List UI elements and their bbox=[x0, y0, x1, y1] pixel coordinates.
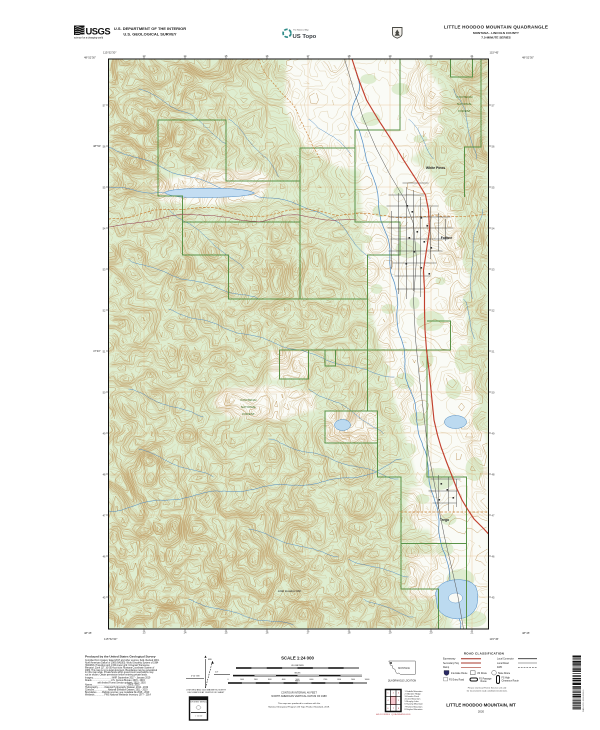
svg-text:2000: 2000 bbox=[254, 679, 258, 681]
svg-text:47′30″: 47′30″ bbox=[93, 349, 101, 353]
svg-text:NATIONAL: NATIONAL bbox=[457, 102, 473, 106]
svg-text:FS High: FS High bbox=[502, 678, 511, 680]
svg-text:4000: 4000 bbox=[282, 679, 286, 681]
svg-text:KOOTENAI: KOOTENAI bbox=[241, 398, 257, 402]
svg-text:GN: GN bbox=[196, 676, 200, 678]
svg-text:6000: 6000 bbox=[310, 679, 314, 681]
svg-text:FS Passage: FS Passage bbox=[479, 679, 492, 681]
svg-text:ADJOINING QUADRANGLES: ADJOINING QUADRANGLES bbox=[376, 713, 411, 716]
svg-text:9000: 9000 bbox=[351, 679, 355, 681]
svg-text:science for a changing world: science for a changing world bbox=[74, 36, 104, 39]
svg-text:6 Swamp Mountain: 6 Swamp Mountain bbox=[405, 703, 424, 706]
svg-text:ROAD CLASSIFICATION: ROAD CLASSIFICATION bbox=[464, 652, 504, 656]
svg-text:for inconsistent road conditio: for inconsistent road conditions/restric… bbox=[467, 689, 507, 692]
svg-text:3000: 3000 bbox=[268, 679, 272, 681]
svg-text:48°52′30″: 48°52′30″ bbox=[522, 56, 534, 60]
svg-text:48°45′: 48°45′ bbox=[84, 631, 92, 635]
svg-text:FOREST: FOREST bbox=[242, 412, 255, 416]
svg-text:2020: 2020 bbox=[478, 710, 485, 714]
svg-text:0°14′: 0°14′ bbox=[191, 676, 196, 678]
svg-text:Trego: Trego bbox=[440, 518, 449, 522]
svg-text:Wetlands................FWS Na: Wetlands................FWS National Wet… bbox=[85, 693, 151, 696]
svg-text:1000: 1000 bbox=[240, 679, 244, 681]
svg-text:115°45′: 115°45′ bbox=[490, 51, 500, 55]
svg-text:Ramp: Ramp bbox=[443, 667, 450, 669]
svg-text:Local Road: Local Road bbox=[497, 663, 509, 665]
svg-text:4WD: 4WD bbox=[497, 667, 502, 669]
svg-text:US Topo: US Topo bbox=[293, 34, 317, 40]
svg-text:115°45′: 115°45′ bbox=[490, 637, 500, 641]
svg-text:MONTANA: MONTANA bbox=[398, 667, 410, 670]
svg-text:Clearance Route: Clearance Route bbox=[502, 679, 520, 682]
svg-text:115°52′30″: 115°52′30″ bbox=[104, 637, 117, 641]
svg-text:FOREST: FOREST bbox=[458, 109, 471, 113]
svg-text:Produced by the United States: Produced by the United States Geological… bbox=[85, 655, 156, 659]
svg-text:Route: Route bbox=[481, 680, 488, 683]
svg-text:White Pines: White Pines bbox=[426, 166, 445, 170]
svg-text:Interstate Route: Interstate Route bbox=[451, 672, 468, 675]
svg-text:This map was produced to confo: This map was produced to conform with th… bbox=[278, 702, 321, 705]
svg-text:LITTLE HOODOO MOUNTAIN QUADRAN: LITTLE HOODOO MOUNTAIN QUADRANGLE bbox=[444, 24, 548, 29]
svg-text:MN: MN bbox=[208, 659, 212, 661]
svg-text:Little Hoodoo Mtn: Little Hoodoo Mtn bbox=[278, 589, 302, 593]
svg-text:State Route: State Route bbox=[498, 672, 511, 675]
svg-text:LITTLE HOODOO MOUNTAIN, MT: LITTLE HOODOO MOUNTAIN, MT bbox=[446, 703, 516, 708]
svg-text:1 : 24 000: 1 : 24 000 bbox=[195, 716, 203, 718]
svg-text:8000: 8000 bbox=[337, 679, 341, 681]
svg-text:ISBN 978-1-9999-9999-9: ISBN 978-1-9999-9999-9 bbox=[583, 689, 585, 712]
svg-text:Secondary Hwy: Secondary Hwy bbox=[443, 662, 460, 665]
svg-text:8 Stryker Mountain: 8 Stryker Mountain bbox=[405, 708, 424, 711]
svg-text:National Geospatial Program US: National Geospatial Program US Topo Prod… bbox=[268, 705, 330, 708]
svg-text:US Route: US Route bbox=[477, 672, 488, 675]
svg-text:Expressway: Expressway bbox=[443, 658, 456, 661]
svg-text:MILES: MILES bbox=[295, 673, 301, 675]
svg-text:48°52′30″: 48°52′30″ bbox=[84, 56, 96, 60]
svg-text:US FOREST SERVICE: US FOREST SERVICE bbox=[189, 702, 208, 704]
svg-text:Fortine: Fortine bbox=[441, 236, 453, 240]
svg-text:NATIONAL: NATIONAL bbox=[241, 405, 257, 409]
svg-text:USGS: USGS bbox=[86, 25, 111, 36]
svg-text:5000: 5000 bbox=[296, 679, 300, 681]
svg-text:48°45′: 48°45′ bbox=[522, 631, 530, 635]
svg-text:KOOTENAI: KOOTENAI bbox=[457, 95, 473, 99]
svg-text:4 Lime Mountain: 4 Lime Mountain bbox=[405, 698, 422, 701]
svg-text:10000: 10000 bbox=[365, 679, 370, 681]
svg-text:QUADRANGLE LOCATION: QUADRANGLE LOCATION bbox=[388, 680, 417, 683]
svg-text:SCALE 1:24 000: SCALE 1:24 000 bbox=[281, 656, 314, 661]
svg-text:Local Connector: Local Connector bbox=[497, 658, 514, 661]
svg-text:14°: 14° bbox=[215, 672, 218, 674]
svg-text:KILOMETERS: KILOMETERS bbox=[291, 665, 304, 667]
svg-text:NORTH AMERICAN VERTICAL DATUM: NORTH AMERICAN VERTICAL DATUM OF 1988 bbox=[271, 695, 327, 698]
svg-text:FS Entry Road: FS Entry Road bbox=[449, 679, 465, 682]
svg-text:48°50′: 48°50′ bbox=[93, 144, 101, 148]
svg-text:DECLINATION AT CENTER OF SHEET: DECLINATION AT CENTER OF SHEET bbox=[188, 691, 226, 694]
svg-text:7000: 7000 bbox=[323, 679, 327, 681]
svg-text:U.S. GEOLOGICAL SURVEY: U.S. GEOLOGICAL SURVEY bbox=[123, 31, 177, 36]
svg-text:115°52′30″: 115°52′30″ bbox=[103, 51, 116, 55]
svg-text:Please visit local Forest Serv: Please visit local Forest Service unit a… bbox=[468, 687, 507, 690]
svg-text:MONTANA - LINCOLN COUNTY: MONTANA - LINCOLN COUNTY bbox=[473, 31, 520, 35]
svg-text:0: 0 bbox=[228, 679, 229, 681]
svg-text:7.5-MINUTE SERIES: 7.5-MINUTE SERIES bbox=[481, 36, 510, 40]
svg-text:2 Gibralter Ridge: 2 Gibralter Ridge bbox=[405, 693, 422, 696]
svg-text:not be shown. Obtain permissio: not be shown. Obtain permission before e… bbox=[85, 674, 148, 677]
svg-text:The National Map: The National Map bbox=[293, 29, 310, 32]
